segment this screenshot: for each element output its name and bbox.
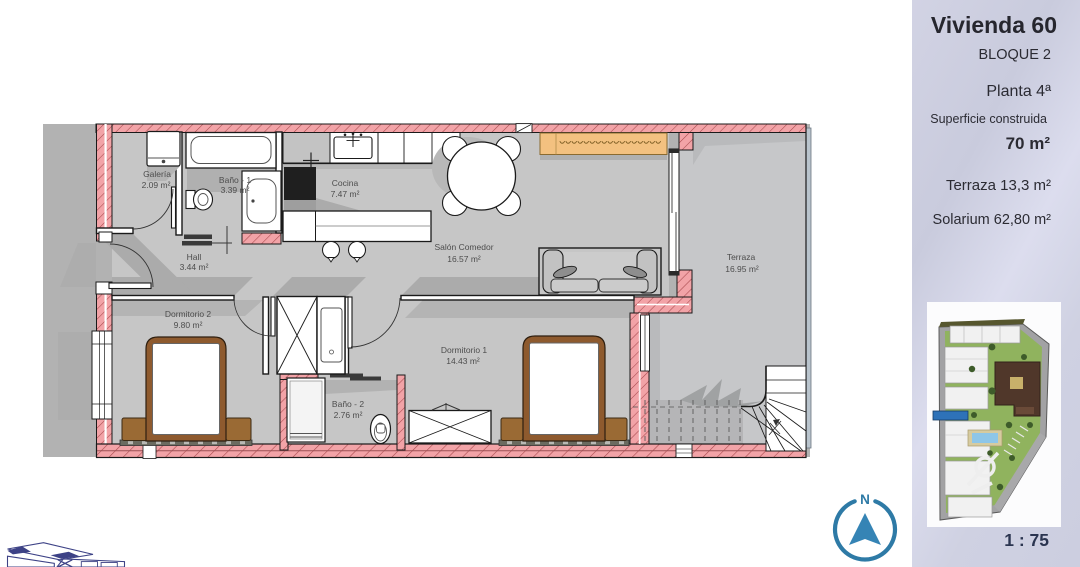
svg-text:Terraza: Terraza [727,252,756,262]
svg-text:14.43 m²: 14.43 m² [446,356,480,366]
svg-text:9.80 m²: 9.80 m² [174,320,203,330]
svg-text:2.76 m²: 2.76 m² [334,410,363,420]
svg-text:Baño - 2: Baño - 2 [332,399,364,409]
svg-text:16.57 m²: 16.57 m² [447,254,481,264]
svg-text:N: N [860,492,870,507]
svg-text:Dormitorio 1: Dormitorio 1 [441,345,488,355]
svg-text:16.95 m²: 16.95 m² [725,264,759,274]
svg-text:Cocina: Cocina [332,178,359,188]
svg-text:3.44 m²: 3.44 m² [180,262,209,272]
svg-text:Dormitorio 2: Dormitorio 2 [165,309,212,319]
svg-text:7.47 m²: 7.47 m² [331,189,360,199]
svg-text:Salón Comedor: Salón Comedor [434,242,493,252]
svg-text:Hall: Hall [187,252,202,262]
svg-text:Baño - 1: Baño - 1 [219,175,251,185]
svg-text:Galería: Galería [143,169,171,179]
svg-text:3.39 m²: 3.39 m² [221,185,250,195]
svg-text:2.09 m²: 2.09 m² [142,180,171,190]
